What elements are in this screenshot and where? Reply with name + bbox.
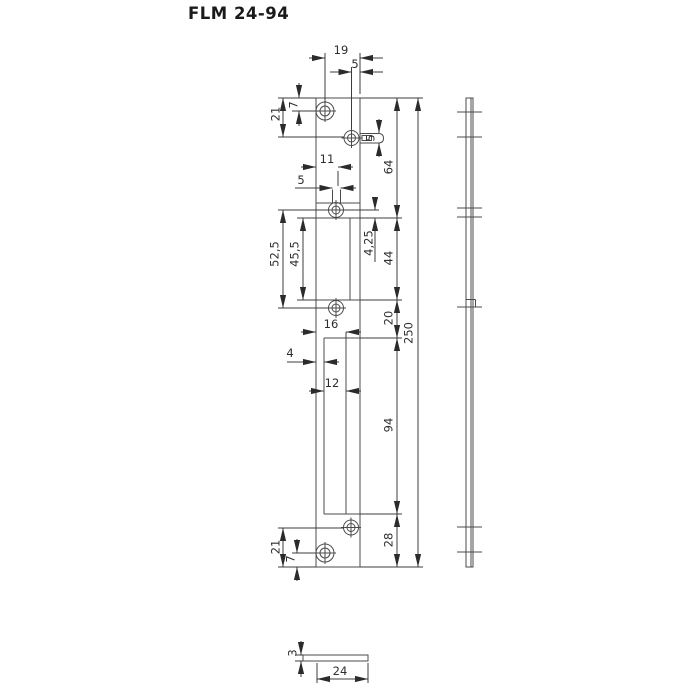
dim-top-width: 19 xyxy=(309,43,383,103)
dimensions: 19 5 7 21 5 11 xyxy=(268,43,424,683)
dim-4-label: 4 xyxy=(286,346,293,360)
dim-44-label: 44 xyxy=(382,251,396,266)
dim-latch-hole-y: 21 xyxy=(269,98,345,137)
side-view xyxy=(457,98,482,567)
dim-12-label: 12 xyxy=(325,376,340,390)
section-view xyxy=(303,655,368,661)
dim-cutout-left-span: 16 xyxy=(301,317,361,338)
dim-20-label: 20 xyxy=(382,311,396,326)
dim-5-latch-label: 5 xyxy=(364,134,378,141)
dim-11-label: 11 xyxy=(320,152,335,166)
dim-cutout-inset: 4 xyxy=(286,346,339,362)
dim-top-to-recess: 64 xyxy=(382,98,398,218)
strike-plate-drawing: FLM 24-94 xyxy=(0,0,700,700)
side-profile xyxy=(466,98,473,567)
dim-mid-slot-width: 5 xyxy=(295,173,356,188)
dim-top-offset: 5 xyxy=(330,57,383,129)
dim-cutout-width: 12 xyxy=(309,376,361,391)
dim-250-label: 250 xyxy=(402,322,416,344)
dim-recess-height: 45,5 xyxy=(288,218,317,300)
drawing-title: FLM 24-94 xyxy=(188,4,289,23)
dim-21-bottom-label: 21 xyxy=(269,540,283,555)
dim-bottom-screw-y: 7 xyxy=(284,539,318,581)
dim-thickness: 3 xyxy=(286,641,304,677)
dim-mid-slot-offset: 11 xyxy=(301,152,353,186)
dim-section-width: 24 xyxy=(317,663,368,683)
dim-cutout-height: 94 xyxy=(382,338,398,514)
dim-94-label: 94 xyxy=(382,418,396,433)
dim-cutout-to-bottom: 28 xyxy=(382,514,398,567)
section-strip xyxy=(303,655,368,661)
dim-5-top-label: 5 xyxy=(351,57,358,71)
dim-28-label: 28 xyxy=(382,533,396,548)
dim-19-label: 19 xyxy=(334,43,349,57)
latch-cutout xyxy=(324,338,360,514)
dim-45-5-label: 45,5 xyxy=(288,241,302,267)
dim-3-label: 3 xyxy=(286,649,300,656)
dim-21-top-label: 21 xyxy=(269,107,283,122)
dim-5-slot-label: 5 xyxy=(297,173,304,187)
dim-hole-to-recess: 4,25 xyxy=(344,197,379,262)
dim-total-height: 250 xyxy=(402,98,419,567)
dim-top-hole-y: 7 xyxy=(287,83,321,126)
dim-16-label: 16 xyxy=(324,317,339,331)
recess-box xyxy=(316,218,360,300)
technical-drawing-page: FLM 24-94 xyxy=(0,0,700,700)
dim-recess-to-cutout: 20 xyxy=(382,300,398,338)
screw-hole-bottom-icon xyxy=(314,542,336,564)
dim-52-5-label: 52,5 xyxy=(268,241,282,267)
dim-recess-span: 44 xyxy=(382,218,398,300)
dim-7-top-label: 7 xyxy=(287,101,301,108)
side-tick-lines xyxy=(457,112,482,552)
dim-latch-slot-height: 5 xyxy=(364,119,380,157)
dim-64-label: 64 xyxy=(382,160,396,175)
dim-7-bottom-label: 7 xyxy=(284,555,298,562)
dim-4-25-label: 4,25 xyxy=(362,230,376,256)
dim-24-label: 24 xyxy=(333,664,348,678)
